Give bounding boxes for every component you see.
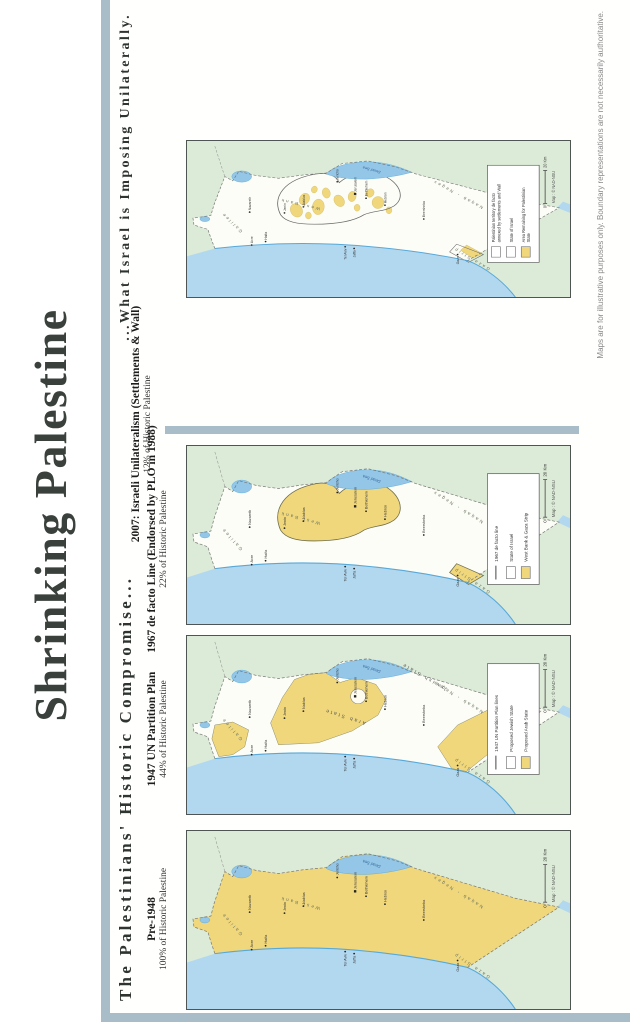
city-label-jaffa: Jaffa: [353, 760, 357, 769]
city-dot: [344, 246, 346, 248]
city-dot: [423, 724, 425, 726]
city-label-nablus: Nablus: [302, 507, 306, 519]
map-credit: Map : © NAD-NSU: [550, 865, 556, 902]
city-label-jericho: Jericho: [336, 478, 340, 490]
legend-swatch-white: [491, 247, 500, 257]
sea-of-galilee: [232, 171, 252, 182]
legend-label: 1967 de facto line: [494, 525, 499, 561]
scale-distance: 20 Km: [543, 849, 548, 862]
city-dot: [344, 756, 346, 758]
city-label-gaza: Gaza: [456, 577, 460, 587]
city-dot: [249, 211, 251, 213]
city-label-gaza: Gaza: [456, 256, 460, 264]
city-label-tel-aviv: Tel Aviv: [344, 569, 348, 582]
legend-label: State of Israel: [509, 534, 514, 562]
remaining-palestinian-area: [354, 204, 360, 211]
city-dot: [265, 560, 267, 562]
poster-title: Shrinking Palestine: [24, 0, 77, 1030]
city-label-jerusalem: Jerusalem: [354, 872, 358, 889]
city-dot: [284, 527, 286, 529]
legend-label: annexed by settlements and Wall: [496, 184, 501, 242]
poster-sheet: Shrinking Palestine The Palestinians' Hi…: [0, 0, 630, 1030]
map-panel-pre1948: GalileeWest BankNaqab - NegevGaza StripD…: [186, 830, 571, 1010]
city-dot: [251, 949, 253, 951]
city-label-haifa: Haifa: [264, 549, 268, 559]
map-subtitle-text: 12% of Historic Palestine: [143, 306, 154, 542]
city-dot: [457, 765, 459, 767]
city-label-jenin: Jenin: [283, 203, 287, 211]
map-panel-unilateral2007: GalileeWest BankNaqab - NegevGaza StripD…: [186, 140, 571, 298]
city-marker-jerusalem: [354, 505, 356, 507]
legend-label: West Bank & Gaza Strip: [524, 512, 529, 561]
city-label-nazareth: Nazareth: [248, 197, 252, 210]
city-dot: [457, 960, 459, 962]
city-label-gaza: Gaza: [456, 962, 460, 972]
city-dot: [336, 682, 338, 684]
city-dot: [365, 700, 367, 702]
city-dot: [302, 710, 304, 712]
map-legend: Palestinian territory de factoannexed by…: [487, 165, 539, 262]
legend-label: State of Israel: [509, 218, 514, 243]
city-label-beersheba: Beersheba: [422, 201, 426, 217]
city-dot: [353, 248, 355, 250]
legend-swatch-yellow: [521, 757, 530, 769]
city-label-nazareth: Nazareth: [248, 510, 252, 525]
legend-swatch-white: [506, 567, 515, 579]
city-dot: [344, 951, 346, 953]
city-label-haifa: Haifa: [264, 232, 268, 240]
city-dot: [423, 919, 425, 921]
section-divider: [165, 426, 579, 434]
legend-swatch-white: [506, 757, 515, 769]
map-title-unilateral2007: 2007: Israeli Unilateralism (Settlements…: [130, 306, 154, 542]
city-label-jerusalem: Jerusalem: [354, 677, 358, 694]
city-label-jenin: Jenin: [283, 707, 287, 716]
city-label-nazareth: Nazareth: [248, 700, 252, 715]
city-dot: [302, 206, 304, 208]
city-dot: [344, 566, 346, 568]
city-dot: [384, 518, 386, 520]
city-dot: [251, 244, 253, 246]
map-credit: Map : © NAD-NSU: [550, 670, 556, 707]
city-dot: [265, 241, 267, 243]
city-label-bethlehem: Bethlehem: [364, 681, 368, 699]
city-dot: [423, 534, 425, 536]
city-label-jerusalem: Jerusalem: [353, 177, 357, 192]
map-subtitle-text: 100% of Historic Palestine: [159, 868, 170, 970]
city-label-bethlehem: Bethlehem: [364, 876, 368, 894]
city-label-beersheba: Beersheba: [422, 899, 426, 918]
map-legend: 1967 de facto lineState of IsraelWest Ba…: [487, 474, 539, 585]
poster-frame-inner: The Palestinians' Historic Compromise...…: [110, 0, 630, 1013]
city-marker-jerusalem: [354, 695, 356, 697]
city-label-acre: Acre: [250, 555, 254, 563]
city-dot: [353, 758, 355, 760]
city-dot: [284, 212, 286, 214]
map-title-pre1948: Pre-1948100% of Historic Palestine: [146, 868, 170, 970]
city-dot: [265, 945, 267, 947]
city-dot: [384, 708, 386, 710]
sea-of-galilee: [232, 670, 252, 683]
city-dot: [353, 568, 355, 570]
city-dot: [384, 903, 386, 905]
city-label-jaffa: Jaffa: [353, 570, 357, 579]
city-dot: [302, 520, 304, 522]
map-legend: 1947 UN Partition Plan linesProposed Jew…: [487, 664, 539, 775]
city-marker-jerusalem: [354, 193, 356, 195]
city-dot: [251, 564, 253, 566]
city-dot: [423, 218, 425, 220]
sea-of-galilee: [232, 480, 252, 493]
city-label-hebron: Hebron: [383, 505, 387, 517]
city-label-nablus: Nablus: [302, 697, 306, 709]
map-subtitle-text: 22% of Historic Palestine: [159, 425, 170, 652]
city-label-bethlehem: Bethlehem: [364, 491, 368, 509]
map-panel-partition1947: GalileeNaqab - NegevGaza StripArab State…: [186, 635, 571, 815]
city-label-jaffa: Jaffa: [353, 955, 357, 964]
city-label-jenin: Jenin: [283, 517, 287, 526]
city-dot: [284, 912, 286, 914]
map-subtitle-text: 44% of Historic Palestine: [159, 672, 170, 787]
city-label-tel-aviv: Tel Aviv: [343, 248, 347, 259]
city-label-jericho: Jericho: [335, 169, 339, 180]
sea-of-galilee: [232, 865, 252, 878]
city-label-hebron: Hebron: [383, 192, 387, 203]
legend-label: Proposed Jewish State: [509, 705, 514, 752]
city-dot: [457, 575, 459, 577]
legend-swatch-white: [506, 247, 515, 257]
city-label-acre: Acre: [250, 940, 254, 948]
city-dot: [284, 717, 286, 719]
city-label-tel-aviv: Tel Aviv: [344, 759, 348, 772]
city-label-beersheba: Beersheba: [422, 514, 426, 533]
legend-swatch-yellow: [521, 247, 530, 257]
city-label-jericho: Jericho: [336, 668, 340, 680]
city-label-jenin: Jenin: [283, 902, 287, 911]
city-dot: [384, 204, 386, 206]
city-dot: [251, 754, 253, 756]
map-panel-defacto1967: GalileeWest BankNaqab - NegevGaza StripD…: [186, 445, 571, 625]
city-label-bethlehem: Bethlehem: [364, 181, 368, 197]
map-credit: Map : © NAD-NSU: [550, 480, 556, 517]
map-svg-partition1947: GalileeNaqab - NegevGaza StripArab State…: [187, 636, 570, 814]
map-svg-pre1948: GalileeWest BankNaqab - NegevGaza StripD…: [187, 831, 570, 1009]
legend-label: 1947 UN Partition Plan lines: [494, 694, 499, 751]
remaining-palestinian-area: [386, 207, 392, 214]
city-label-hebron: Hebron: [383, 695, 387, 707]
city-label-jericho: Jericho: [336, 863, 340, 875]
city-label-beersheba: Beersheba: [422, 704, 426, 723]
city-label-acre: Acre: [250, 236, 254, 243]
map-svg-unilateral2007: GalileeWest BankNaqab - NegevGaza StripD…: [187, 141, 570, 297]
legend-label: Proposed Arab State: [524, 709, 529, 751]
map-svg-defacto1967: GalileeWest BankNaqab - NegevGaza StripD…: [187, 446, 570, 624]
city-label-jerusalem: Jerusalem: [354, 487, 358, 504]
city-label-haifa: Haifa: [264, 739, 268, 749]
city-dot: [336, 492, 338, 494]
map-disclaimer: Maps are for illustrative purposes only.…: [596, 11, 605, 359]
city-label-nablus: Nablus: [302, 892, 306, 904]
remaining-palestinian-area: [305, 212, 311, 219]
city-label-acre: Acre: [250, 745, 254, 753]
city-label-jaffa: Jaffa: [352, 250, 356, 257]
city-dot: [336, 181, 338, 183]
city-dot: [353, 953, 355, 955]
city-label-tel-aviv: Tel Aviv: [344, 954, 348, 967]
legend-label: State: [526, 233, 531, 243]
scale-distance: 20 Km: [543, 654, 548, 667]
city-label-haifa: Haifa: [264, 934, 268, 944]
scale-distance: 20 Km: [542, 156, 547, 168]
city-dot: [249, 526, 251, 528]
city-dot: [265, 750, 267, 752]
city-dot: [365, 510, 367, 512]
city-dot: [457, 254, 459, 256]
city-dot: [365, 197, 367, 199]
city-label-hebron: Hebron: [383, 890, 387, 902]
map-title-text: 2007: Israeli Unilateralism (Settlements…: [130, 306, 143, 542]
city-dot: [249, 716, 251, 718]
city-dot: [249, 911, 251, 913]
scale-distance: 20 Km: [543, 464, 548, 477]
city-dot: [336, 877, 338, 879]
map-title-text: Pre-1948: [146, 868, 159, 970]
city-label-nazareth: Nazareth: [248, 895, 252, 910]
map-title-text: 1947 UN Partition Plan: [146, 672, 159, 787]
legend-swatch-yellow: [521, 567, 530, 579]
city-marker-jerusalem: [354, 890, 356, 892]
city-label-nablus: Nablus: [302, 195, 306, 205]
map-credit: Map : © NAD-NSU: [551, 171, 556, 203]
map-title-partition1947: 1947 UN Partition Plan44% of Historic Pa…: [146, 672, 170, 787]
poster-frame: The Palestinians' Historic Compromise...…: [101, 0, 630, 1022]
city-dot: [365, 895, 367, 897]
maps-area: Pre-1948100% of Historic PalestineGalile…: [110, 0, 630, 1013]
city-label-gaza: Gaza: [456, 767, 460, 777]
city-dot: [302, 905, 304, 907]
